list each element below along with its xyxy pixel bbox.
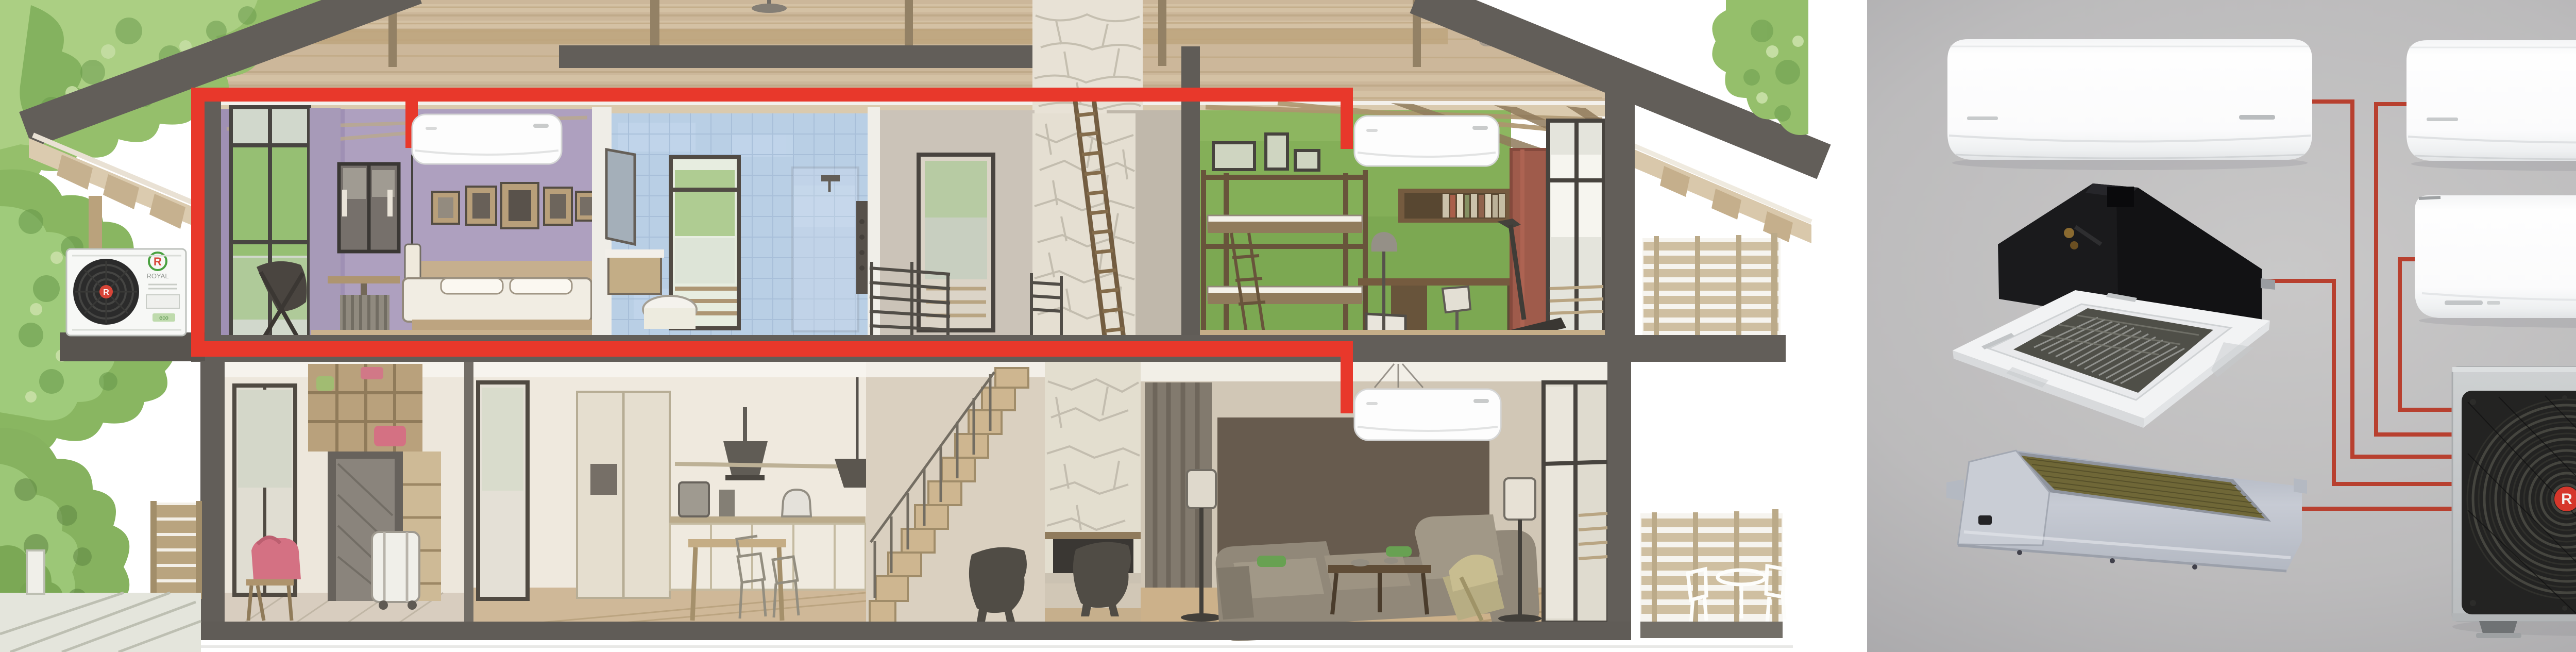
svg-text:R: R [2561,491,2572,508]
